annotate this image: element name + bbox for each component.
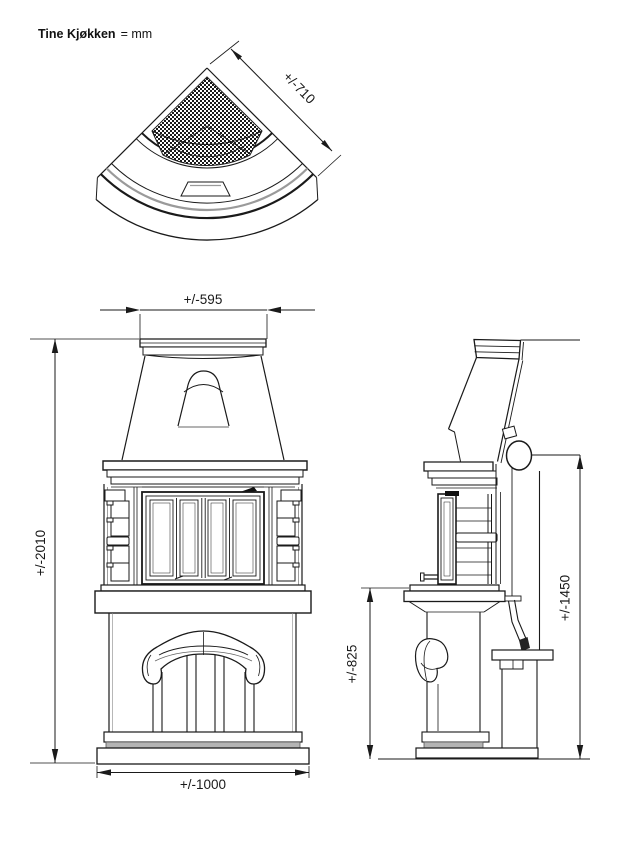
door-handle xyxy=(423,575,438,579)
quoin-block xyxy=(111,563,129,581)
dim-label-total-height: +/-2010 xyxy=(33,530,48,576)
front-hearth-bench xyxy=(95,585,311,613)
mantel-board xyxy=(428,471,496,478)
plan-right-wing-cap xyxy=(317,178,318,200)
dim-label-depth: +/-710 xyxy=(280,69,318,107)
dimension-base-width-1000: +/-1000 xyxy=(97,766,309,792)
quoin-lip xyxy=(293,563,299,567)
side-rear-shelf xyxy=(492,650,553,669)
side-scroll-decoration xyxy=(416,639,448,682)
left-quoin-pillar xyxy=(105,490,129,581)
front-arch-decoration xyxy=(142,631,264,684)
plan-hatched-body xyxy=(152,77,262,166)
dimension-hearth-height-825: +/-825 xyxy=(345,588,410,759)
quoin-band xyxy=(277,537,299,545)
arrowhead xyxy=(577,745,583,759)
right-quoin-pillar xyxy=(277,490,301,581)
side-plinth xyxy=(416,732,538,758)
pipe-collar xyxy=(505,596,521,601)
shelf-slab xyxy=(492,650,553,660)
pipe-foot xyxy=(519,637,530,651)
front-hood xyxy=(122,355,284,460)
mantel-board xyxy=(424,462,493,471)
arrowhead xyxy=(295,769,309,775)
plinth-shade-band xyxy=(106,742,300,748)
arrowhead xyxy=(52,339,58,353)
side-chimney-cap xyxy=(474,340,524,361)
hood-top-curve xyxy=(145,355,261,359)
arrowhead xyxy=(267,307,281,313)
quoin-block xyxy=(277,546,295,563)
quoin-block xyxy=(111,518,129,536)
side-hearth-bench xyxy=(404,585,505,612)
cap-band xyxy=(474,340,521,360)
front-plinth xyxy=(97,732,309,764)
arrowhead xyxy=(97,769,111,775)
plinth-step xyxy=(104,732,302,742)
front-chimney-cap xyxy=(140,339,266,355)
side-mantel xyxy=(424,462,497,488)
quoin-block xyxy=(111,546,129,563)
dimension-top-width-595: +/-595 xyxy=(100,292,315,339)
plinth-shade-band xyxy=(424,742,483,748)
hood-front-edge xyxy=(449,358,477,430)
mantel-board xyxy=(103,461,307,470)
door-handle-knob xyxy=(421,573,425,581)
hood-front-notch xyxy=(449,429,461,462)
quoin-block xyxy=(105,490,125,501)
quoin-block xyxy=(277,518,295,536)
plinth-step xyxy=(422,732,489,742)
plan-view: +/-710 xyxy=(96,41,341,240)
arrowhead xyxy=(126,307,140,313)
hood-vent-arch xyxy=(178,371,229,426)
extension-line xyxy=(318,155,341,176)
quoin-block xyxy=(111,501,129,518)
dim-label-top-width: +/-595 xyxy=(184,292,223,307)
quoin-block xyxy=(277,501,295,518)
plan-left-wing-cap xyxy=(96,178,97,200)
arrowhead xyxy=(367,745,373,759)
front-mantel xyxy=(103,461,307,487)
quoin-lip xyxy=(107,546,113,550)
side-door-latch xyxy=(445,491,459,496)
dimension-flue-height-1450: +/-1450 xyxy=(558,455,584,759)
bench-edge-band xyxy=(101,585,305,591)
hood-vent-inner-arch xyxy=(184,385,223,393)
bench-slab xyxy=(404,591,505,602)
quoin-lip xyxy=(293,518,299,522)
base-legs xyxy=(153,655,254,732)
plinth-base-step xyxy=(416,748,538,758)
unit-note: = mm xyxy=(121,27,153,41)
side-quoin-band xyxy=(456,533,497,542)
fireplace-dimension-drawing: Tine Kjøkken= mm +/-710 xyxy=(0,0,632,860)
drawing-title: Tine Kjøkken= mm xyxy=(38,27,152,41)
quoin-lip xyxy=(107,563,113,567)
arrowhead xyxy=(367,588,373,602)
bench-edge-band xyxy=(410,585,499,591)
product-name: Tine Kjøkken xyxy=(38,27,116,41)
dim-label-base-width: +/-1000 xyxy=(180,777,226,792)
front-view: +/-595 xyxy=(30,292,315,792)
side-flue-pipe xyxy=(505,596,530,651)
mantel-board xyxy=(111,477,299,484)
arrowhead xyxy=(577,455,583,469)
plan-vent xyxy=(181,182,230,196)
bench-underside xyxy=(409,602,500,613)
quoin-lip xyxy=(107,501,113,505)
front-glass-door xyxy=(142,492,264,584)
scroll-body xyxy=(416,639,448,682)
dim-label-hearth-height: +/-825 xyxy=(345,645,360,684)
cap-back-edge xyxy=(522,342,524,360)
quoin-block xyxy=(277,563,295,581)
quoin-band xyxy=(107,537,129,545)
technical-drawing-page: Tine Kjøkken= mm +/-710 xyxy=(0,0,632,860)
quoin-block xyxy=(281,490,301,501)
side-view: +/-825 +/-1450 xyxy=(345,340,591,760)
plan-outer-arc xyxy=(96,200,317,240)
shelf-bracket xyxy=(500,660,523,669)
plinth-base-step xyxy=(97,748,309,764)
door-outer-frame xyxy=(142,492,264,584)
quoin-lip xyxy=(293,501,299,505)
bench-slab xyxy=(95,591,311,613)
extension-line xyxy=(140,314,267,339)
dim-label-flue-height: +/-1450 xyxy=(558,575,573,621)
mantel-board xyxy=(432,478,497,485)
quoin-lip xyxy=(293,546,299,550)
rear-column-edges xyxy=(502,660,537,748)
quoin-lip xyxy=(107,518,113,522)
arrowhead xyxy=(52,749,58,763)
flue-outlet-circle xyxy=(507,441,532,470)
mantel-board xyxy=(107,470,303,477)
cap-band xyxy=(143,347,263,355)
